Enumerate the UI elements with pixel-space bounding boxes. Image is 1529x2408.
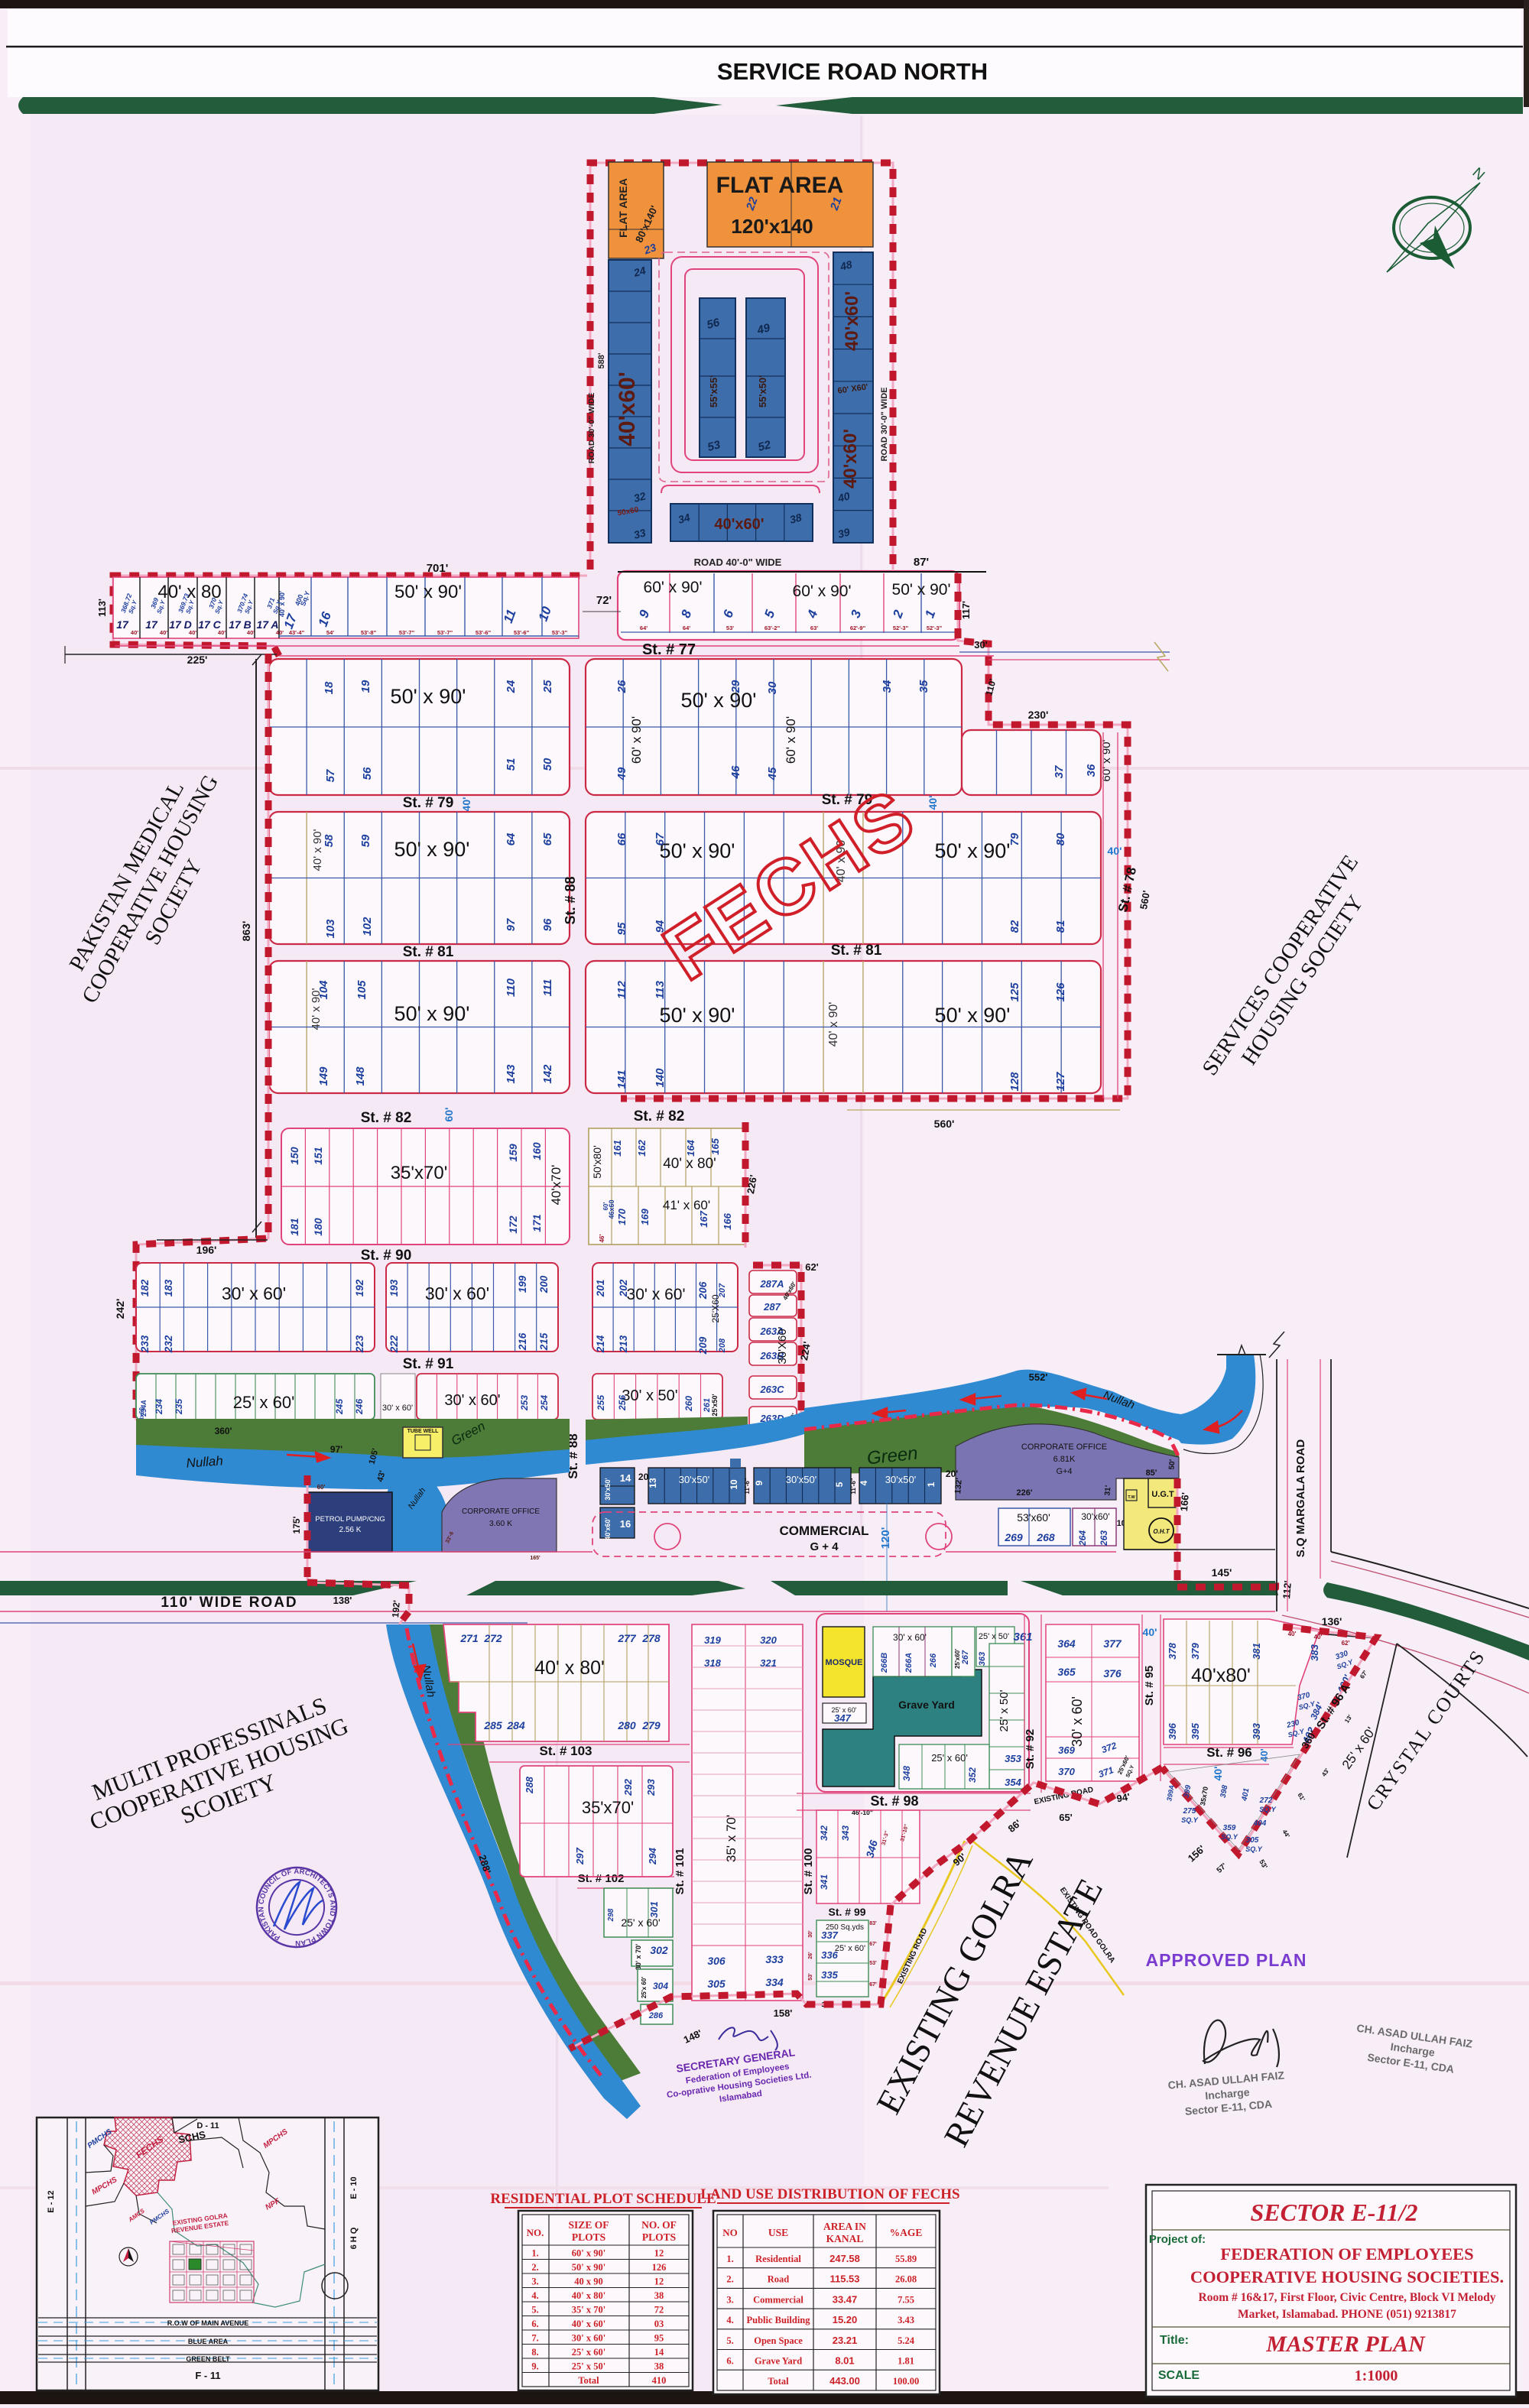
svg-text:53'-8": 53'-8" — [361, 629, 377, 636]
svg-text:1: 1 — [926, 1481, 937, 1487]
svg-text:18: 18 — [323, 681, 336, 694]
svg-text:G+4: G+4 — [1056, 1467, 1072, 1476]
svg-text:404: 404 — [1253, 1819, 1267, 1828]
svg-text:St. # 100: St. # 100 — [802, 1848, 815, 1895]
svg-text:192': 192' — [390, 1600, 402, 1618]
svg-text:40': 40' — [160, 629, 167, 636]
svg-text:46x60: 46x60 — [608, 1199, 615, 1219]
svg-text:25' x 50': 25' x 50' — [979, 1632, 1009, 1641]
svg-text:30' x 70': 30' x 70' — [635, 1944, 642, 1970]
svg-text:126: 126 — [652, 2262, 667, 2273]
svg-text:161: 161 — [612, 1140, 623, 1157]
svg-text:53': 53' — [808, 1973, 813, 1981]
svg-text:Open Space: Open Space — [754, 2335, 803, 2346]
svg-text:50' x 90': 50' x 90' — [394, 1002, 470, 1025]
svg-text:105: 105 — [355, 980, 368, 1000]
svg-text:302: 302 — [650, 1944, 668, 1956]
svg-text:151: 151 — [312, 1147, 324, 1165]
svg-text:111: 111 — [541, 979, 554, 997]
svg-text:25' x 60': 25' x 60' — [572, 2347, 605, 2358]
svg-text:72: 72 — [654, 2305, 664, 2316]
svg-text:136': 136' — [1322, 1615, 1342, 1628]
svg-text:304: 304 — [653, 1981, 668, 1991]
svg-text:25: 25 — [541, 680, 554, 693]
svg-text:202: 202 — [618, 1279, 629, 1297]
svg-text:170: 170 — [616, 1208, 628, 1225]
svg-text:138': 138' — [333, 1595, 352, 1606]
svg-text:St. # 95: St. # 95 — [1143, 1666, 1156, 1706]
svg-text:141: 141 — [615, 1069, 628, 1089]
svg-text:50' x 90': 50' x 90' — [391, 685, 466, 708]
svg-text:50' x 90': 50' x 90' — [681, 689, 757, 712]
svg-text:226': 226' — [1017, 1488, 1033, 1498]
svg-text:AREA IN: AREA IN — [823, 2221, 866, 2232]
svg-text:305: 305 — [1246, 1836, 1259, 1845]
svg-text:17: 17 — [116, 618, 129, 631]
svg-text:58: 58 — [323, 834, 336, 847]
svg-text:293: 293 — [645, 1778, 657, 1796]
svg-text:72': 72' — [596, 594, 612, 607]
svg-text:318: 318 — [704, 1657, 721, 1669]
svg-text:50' x 90': 50' x 90' — [394, 582, 462, 602]
svg-text:6.: 6. — [531, 2319, 538, 2329]
svg-text:60': 60' — [443, 1108, 455, 1122]
svg-text:266B: 266B — [880, 1653, 889, 1673]
svg-text:53'x60': 53'x60' — [1017, 1511, 1050, 1524]
svg-text:335: 335 — [821, 1969, 838, 1981]
svg-text:BLUE AREA: BLUE AREA — [188, 2338, 229, 2345]
svg-text:67': 67' — [869, 1982, 877, 1988]
svg-text:3.: 3. — [726, 2294, 733, 2305]
svg-text:443.00: 443.00 — [829, 2375, 860, 2387]
svg-text:110: 110 — [505, 978, 518, 997]
svg-text:159: 159 — [507, 1144, 519, 1162]
svg-text:182: 182 — [139, 1279, 151, 1296]
svg-text:St. # 92: St. # 92 — [1024, 1729, 1037, 1770]
svg-text:SECTOR E-11/2: SECTOR E-11/2 — [1250, 2199, 1417, 2226]
svg-text:40' x 90': 40' x 90' — [827, 1002, 840, 1047]
svg-text:50'x80': 50'x80' — [591, 1145, 603, 1179]
svg-text:233: 233 — [139, 1335, 151, 1353]
svg-text:266: 266 — [929, 1653, 938, 1668]
svg-text:COOPERATIVE HOUSING SOCIETIES.: COOPERATIVE HOUSING SOCIETIES. — [1190, 2267, 1504, 2286]
svg-text:263: 263 — [1099, 1530, 1109, 1546]
svg-text:40': 40' — [927, 796, 939, 810]
svg-text:40': 40' — [276, 629, 284, 636]
svg-text:285: 285 — [483, 1719, 502, 1731]
svg-text:172: 172 — [507, 1215, 519, 1234]
svg-text:St. # 91: St. # 91 — [403, 1356, 454, 1372]
svg-text:54': 54' — [326, 629, 334, 636]
svg-text:53'-7": 53'-7" — [437, 629, 453, 636]
svg-text:206: 206 — [697, 1281, 709, 1300]
svg-text:30'X60': 30'X60' — [776, 1326, 789, 1364]
svg-text:67: 67 — [654, 832, 667, 845]
svg-text:5.24: 5.24 — [898, 2335, 915, 2346]
svg-text:40': 40' — [1143, 1626, 1157, 1638]
svg-text:64': 64' — [640, 625, 648, 631]
svg-text:66: 66 — [615, 832, 628, 845]
svg-text:53': 53' — [726, 625, 734, 631]
svg-text:30': 30' — [974, 639, 988, 651]
svg-text:%AGE: %AGE — [890, 2227, 923, 2238]
svg-text:225': 225' — [187, 654, 208, 666]
svg-text:35' x 70': 35' x 70' — [724, 1815, 739, 1862]
svg-text:588': 588' — [597, 352, 606, 368]
svg-text:254: 254 — [539, 1395, 550, 1411]
svg-text:209: 209 — [697, 1336, 709, 1355]
svg-text:30' x 60': 30' x 60' — [222, 1284, 286, 1303]
svg-text:60' x 90': 60' x 90' — [1100, 739, 1113, 781]
svg-text:125: 125 — [1008, 982, 1021, 1002]
svg-text:30' x 60': 30' x 60' — [425, 1284, 489, 1303]
svg-text:12: 12 — [654, 2248, 664, 2259]
svg-text:113': 113' — [96, 599, 108, 617]
svg-text:52'-3": 52'-3" — [927, 625, 943, 631]
svg-text:38: 38 — [654, 2290, 664, 2301]
svg-text:341: 341 — [819, 1874, 829, 1890]
svg-text:40': 40' — [247, 629, 255, 636]
svg-text:COMMERCIAL: COMMERCIAL — [779, 1524, 868, 1538]
svg-text:277: 277 — [617, 1632, 637, 1644]
svg-text:232: 232 — [163, 1335, 174, 1353]
svg-text:25'x 60': 25'x 60' — [641, 1977, 648, 1998]
svg-text:30' x 60': 30' x 60' — [1070, 1696, 1085, 1747]
svg-text:148: 148 — [354, 1066, 367, 1086]
svg-text:127: 127 — [1054, 1072, 1067, 1092]
svg-text:1.: 1. — [531, 2248, 538, 2259]
svg-text:CORPORATE OFFICE: CORPORATE OFFICE — [462, 1507, 540, 1516]
svg-text:60' x 90': 60' x 90' — [793, 583, 852, 600]
svg-text:26.08: 26.08 — [895, 2274, 917, 2285]
svg-text:253: 253 — [519, 1395, 530, 1411]
svg-text:67': 67' — [869, 1942, 877, 1947]
svg-text:4.: 4. — [531, 2290, 538, 2301]
svg-text:234: 234 — [154, 1399, 164, 1415]
svg-text:171: 171 — [531, 1214, 543, 1232]
svg-text:40': 40' — [1314, 1634, 1323, 1640]
svg-text:25' x 50': 25' x 50' — [572, 2361, 605, 2372]
svg-text:40'x80': 40'x80' — [1191, 1665, 1251, 1686]
svg-text:142: 142 — [541, 1064, 554, 1084]
svg-text:160: 160 — [531, 1142, 543, 1160]
svg-text:110' WIDE ROAD: 110' WIDE ROAD — [161, 1595, 297, 1611]
svg-text:St. # 99: St. # 99 — [828, 1906, 865, 1918]
svg-text:20': 20' — [946, 1468, 958, 1479]
svg-text:60': 60' — [317, 1484, 326, 1491]
svg-text:5.: 5. — [531, 2305, 538, 2316]
svg-text:53'-3": 53'-3" — [552, 629, 568, 636]
svg-text:53': 53' — [869, 1961, 877, 1966]
svg-text:St. # 81: St. # 81 — [403, 944, 454, 960]
svg-text:24: 24 — [505, 680, 518, 693]
svg-text:FEDERATION OF EMPLOYEES: FEDERATION OF EMPLOYEES — [1220, 2244, 1473, 2264]
svg-text:120'x140: 120'x140 — [731, 215, 813, 238]
svg-text:280: 280 — [617, 1719, 636, 1731]
svg-text:23.21: 23.21 — [833, 2335, 858, 2346]
svg-text:213: 213 — [618, 1335, 629, 1353]
svg-text:55.89: 55.89 — [895, 2254, 917, 2264]
svg-text:192: 192 — [354, 1279, 365, 1296]
svg-text:25' x 60': 25' x 60' — [233, 1393, 295, 1412]
svg-text:SQ.Y: SQ.Y — [1245, 1845, 1263, 1853]
svg-text:31': 31' — [1103, 1485, 1112, 1496]
svg-text:81: 81 — [1054, 920, 1067, 933]
svg-text:53'-6": 53'-6" — [476, 629, 492, 636]
svg-text:FLAT AREA: FLAT AREA — [716, 173, 844, 198]
svg-text:269: 269 — [1004, 1531, 1023, 1543]
svg-text:306: 306 — [707, 1955, 726, 1967]
svg-text:St. # 102: St. # 102 — [578, 1872, 625, 1885]
svg-text:41' x 60': 41' x 60' — [663, 1198, 710, 1212]
svg-text:245: 245 — [334, 1399, 345, 1415]
svg-text:GREEN BELT: GREEN BELT — [186, 2355, 230, 2363]
svg-text:370: 370 — [1058, 1766, 1075, 1777]
svg-text:30'x50': 30'x50' — [885, 1474, 916, 1485]
svg-text:40 x 90: 40 x 90 — [574, 2277, 603, 2287]
svg-text:TUBE WELL: TUBE WELL — [407, 1429, 440, 1434]
svg-text:169: 169 — [639, 1208, 651, 1225]
svg-text:PLOTS: PLOTS — [642, 2231, 676, 2243]
svg-text:95: 95 — [615, 922, 628, 935]
svg-text:410: 410 — [652, 2375, 667, 2386]
svg-text:164: 164 — [685, 1139, 696, 1156]
svg-text:St. # 103: St. # 103 — [540, 1744, 592, 1758]
svg-text:113: 113 — [654, 980, 667, 999]
svg-text:162: 162 — [636, 1139, 648, 1156]
svg-text:4.: 4. — [726, 2315, 733, 2325]
svg-text:St. # 88: St. # 88 — [563, 876, 578, 924]
svg-text:120': 120' — [879, 1527, 892, 1550]
svg-text:292: 292 — [622, 1778, 634, 1796]
svg-text:305: 305 — [707, 1978, 726, 1990]
svg-text:268: 268 — [1036, 1531, 1055, 1543]
svg-text:46: 46 — [729, 765, 742, 779]
svg-text:165: 165 — [709, 1137, 721, 1154]
svg-text:40'x60': 40'x60' — [840, 429, 861, 488]
svg-text:100.00: 100.00 — [893, 2376, 919, 2387]
svg-text:377: 377 — [1103, 1637, 1122, 1650]
svg-text:167: 167 — [698, 1210, 709, 1227]
svg-text:SQ.Y: SQ.Y — [1221, 1833, 1238, 1841]
svg-text:347: 347 — [834, 1712, 851, 1724]
svg-text:ROAD 30'-0" WIDE: ROAD 30'-0" WIDE — [587, 393, 596, 464]
svg-text:180: 180 — [312, 1218, 324, 1236]
svg-text:40': 40' — [218, 629, 226, 636]
svg-text:126: 126 — [1054, 982, 1067, 1002]
svg-text:294: 294 — [647, 1847, 658, 1864]
svg-text:St. # 96: St. # 96 — [1206, 1745, 1252, 1760]
svg-text:13: 13 — [648, 1478, 658, 1488]
svg-text:59: 59 — [359, 834, 372, 847]
svg-text:65: 65 — [541, 832, 554, 845]
svg-text:26': 26' — [808, 1952, 813, 1959]
svg-text:26: 26 — [615, 680, 628, 693]
svg-text:863': 863' — [240, 921, 252, 942]
svg-text:USE: USE — [768, 2227, 788, 2238]
svg-text:275: 275 — [1183, 1807, 1196, 1816]
svg-text:10: 10 — [729, 1479, 739, 1490]
svg-text:SERVICE ROAD NORTH: SERVICE ROAD NORTH — [717, 58, 988, 85]
svg-text:Total: Total — [768, 2376, 789, 2387]
svg-text:359: 359 — [1223, 1824, 1236, 1832]
svg-text:CORPORATE OFFICE: CORPORATE OFFICE — [1021, 1443, 1107, 1452]
svg-text:79: 79 — [1008, 832, 1021, 845]
svg-text:321: 321 — [760, 1657, 777, 1669]
svg-text:17: 17 — [145, 618, 158, 631]
svg-text:60' x 90': 60' x 90' — [784, 716, 798, 764]
svg-text:Nullah: Nullah — [186, 1453, 223, 1470]
svg-text:30' x 60': 30' x 60' — [893, 1632, 927, 1643]
svg-text:112: 112 — [615, 980, 628, 999]
svg-text:50' x 90': 50' x 90' — [892, 581, 951, 599]
svg-text:267: 267 — [961, 1650, 970, 1665]
svg-text:65': 65' — [1059, 1812, 1073, 1823]
svg-text:288: 288 — [524, 1776, 535, 1793]
svg-text:63'-2": 63'-2" — [764, 625, 781, 631]
svg-text:395: 395 — [1190, 1722, 1201, 1739]
svg-text:333: 333 — [765, 1953, 784, 1965]
svg-text:200: 200 — [538, 1275, 550, 1293]
svg-text:40'x60': 40'x60' — [714, 516, 764, 533]
svg-text:Grave Yard: Grave Yard — [755, 2356, 802, 2367]
svg-text:St. # 81: St. # 81 — [831, 943, 882, 959]
svg-text:14: 14 — [654, 2347, 664, 2358]
svg-text:320: 320 — [760, 1634, 777, 1646]
svg-text:348: 348 — [901, 1766, 912, 1781]
svg-text:80: 80 — [1054, 832, 1067, 845]
svg-text:3.43: 3.43 — [898, 2315, 914, 2325]
svg-text:140: 140 — [654, 1068, 667, 1088]
svg-text:SIZE OF: SIZE OF — [569, 2219, 609, 2231]
svg-text:ROAD 40'-0" WIDE: ROAD 40'-0" WIDE — [694, 557, 782, 568]
svg-text:NO.: NO. — [527, 2227, 544, 2238]
svg-text:St. # 101: St. # 101 — [674, 1848, 687, 1895]
svg-text:25'X60: 25'X60 — [710, 1294, 721, 1322]
svg-text:175': 175' — [291, 1516, 302, 1533]
svg-text:117': 117' — [960, 601, 972, 619]
svg-text:53'-7": 53'-7" — [399, 629, 415, 636]
svg-text:2.: 2. — [726, 2274, 733, 2285]
svg-text:272: 272 — [1259, 1796, 1273, 1805]
svg-text:Total: Total — [578, 2375, 599, 2386]
svg-text:MOSQUE: MOSQUE — [826, 1658, 863, 1667]
svg-text:6 H Q: 6 H Q — [349, 2227, 359, 2249]
svg-text:552': 552' — [1029, 1371, 1048, 1383]
svg-text:376: 376 — [1103, 1667, 1122, 1679]
svg-text:64': 64' — [683, 625, 690, 631]
svg-text:145': 145' — [1212, 1566, 1232, 1579]
svg-text:38: 38 — [654, 2361, 664, 2372]
svg-text:361: 361 — [1013, 1631, 1032, 1644]
svg-text:298: 298 — [607, 1908, 615, 1922]
svg-text:St. # 90: St. # 90 — [361, 1248, 412, 1264]
svg-text:6.: 6. — [726, 2356, 733, 2367]
svg-text:378: 378 — [1167, 1642, 1178, 1659]
svg-text:MASTER PLAN: MASTER PLAN — [1265, 2332, 1426, 2357]
svg-text:369: 369 — [1058, 1744, 1075, 1756]
svg-text:165': 165' — [530, 1556, 541, 1561]
svg-text:35'x70': 35'x70' — [582, 1798, 634, 1817]
svg-text:St. # 82: St. # 82 — [361, 1110, 412, 1126]
svg-text:Road: Road — [768, 2274, 790, 2285]
svg-text:St. # 98: St. # 98 — [870, 1793, 918, 1809]
svg-text:242': 242' — [114, 1299, 126, 1319]
svg-text:T.W: T.W — [1128, 1495, 1135, 1500]
svg-text:30' x 60': 30' x 60' — [572, 2333, 605, 2344]
svg-text:223: 223 — [354, 1335, 365, 1353]
svg-text:30': 30' — [808, 1930, 813, 1938]
svg-text:128: 128 — [1008, 1072, 1021, 1092]
svg-text:30'x60': 30'x60' — [1081, 1511, 1109, 1522]
svg-text:158': 158' — [774, 2007, 793, 2019]
svg-text:365: 365 — [1057, 1666, 1076, 1678]
svg-text:193: 193 — [388, 1279, 400, 1296]
svg-text:230': 230' — [1028, 709, 1049, 721]
svg-text:85': 85' — [1146, 1468, 1157, 1478]
svg-text:46': 46' — [599, 1235, 605, 1243]
svg-text:Grave Yard: Grave Yard — [898, 1699, 955, 1711]
svg-text:53'-6": 53'-6" — [514, 629, 530, 636]
svg-text:52'-3": 52'-3" — [893, 625, 909, 631]
svg-text:11'-6": 11'-6" — [744, 1478, 751, 1494]
svg-text:199: 199 — [517, 1275, 528, 1293]
svg-text:214: 214 — [595, 1335, 606, 1353]
svg-text:FLAT AREA: FLAT AREA — [617, 178, 629, 238]
svg-text:40'x60': 40'x60' — [615, 372, 640, 446]
svg-text:30: 30 — [766, 681, 779, 694]
svg-text:264: 264 — [1077, 1530, 1088, 1546]
svg-text:95: 95 — [654, 2333, 664, 2344]
svg-text:7.: 7. — [531, 2333, 538, 2344]
svg-text:40': 40' — [1288, 1631, 1297, 1637]
svg-text:256: 256 — [617, 1395, 628, 1411]
svg-text:62'-9": 62'-9" — [850, 625, 866, 631]
svg-text:102: 102 — [361, 917, 374, 936]
svg-text:94': 94' — [1115, 1791, 1131, 1805]
svg-text:G + 4: G + 4 — [810, 1540, 839, 1553]
svg-text:40' x 80': 40' x 80' — [663, 1156, 716, 1172]
svg-text:201: 201 — [595, 1280, 606, 1298]
svg-text:132': 132' — [953, 1477, 964, 1494]
svg-text:40' x 90': 40' x 90' — [310, 988, 323, 1030]
svg-text:U.G.T: U.G.T — [1151, 1490, 1174, 1499]
svg-text:96: 96 — [541, 918, 554, 931]
svg-text:247.58: 247.58 — [829, 2253, 860, 2264]
svg-text:343: 343 — [840, 1825, 851, 1841]
svg-text:364: 364 — [1057, 1637, 1076, 1650]
svg-text:360': 360' — [215, 1426, 232, 1436]
svg-text:4: 4 — [859, 1480, 869, 1485]
svg-text:271: 271 — [459, 1632, 479, 1644]
svg-text:19: 19 — [359, 680, 372, 693]
svg-text:35' x 70': 35' x 70' — [572, 2305, 605, 2316]
svg-text:319: 319 — [704, 1634, 721, 1646]
svg-text:363: 363 — [978, 1652, 987, 1666]
svg-text:36: 36 — [1085, 764, 1098, 777]
svg-text:40': 40' — [189, 629, 196, 636]
svg-text:15.20: 15.20 — [833, 2314, 858, 2325]
svg-text:Title:: Title: — [1160, 2334, 1189, 2347]
svg-text:40'x60': 40'x60' — [604, 1517, 612, 1540]
svg-text:40': 40' — [460, 797, 472, 812]
svg-text:396: 396 — [1167, 1722, 1178, 1739]
svg-text:RESIDENTIAL PLOT SCHEDULE: RESIDENTIAL PLOT SCHEDULE — [490, 2191, 716, 2207]
svg-text:50' x 90': 50' x 90' — [935, 839, 1011, 862]
svg-text:57: 57 — [324, 769, 337, 782]
svg-text:82: 82 — [1008, 920, 1021, 933]
svg-text:208: 208 — [718, 1338, 727, 1353]
